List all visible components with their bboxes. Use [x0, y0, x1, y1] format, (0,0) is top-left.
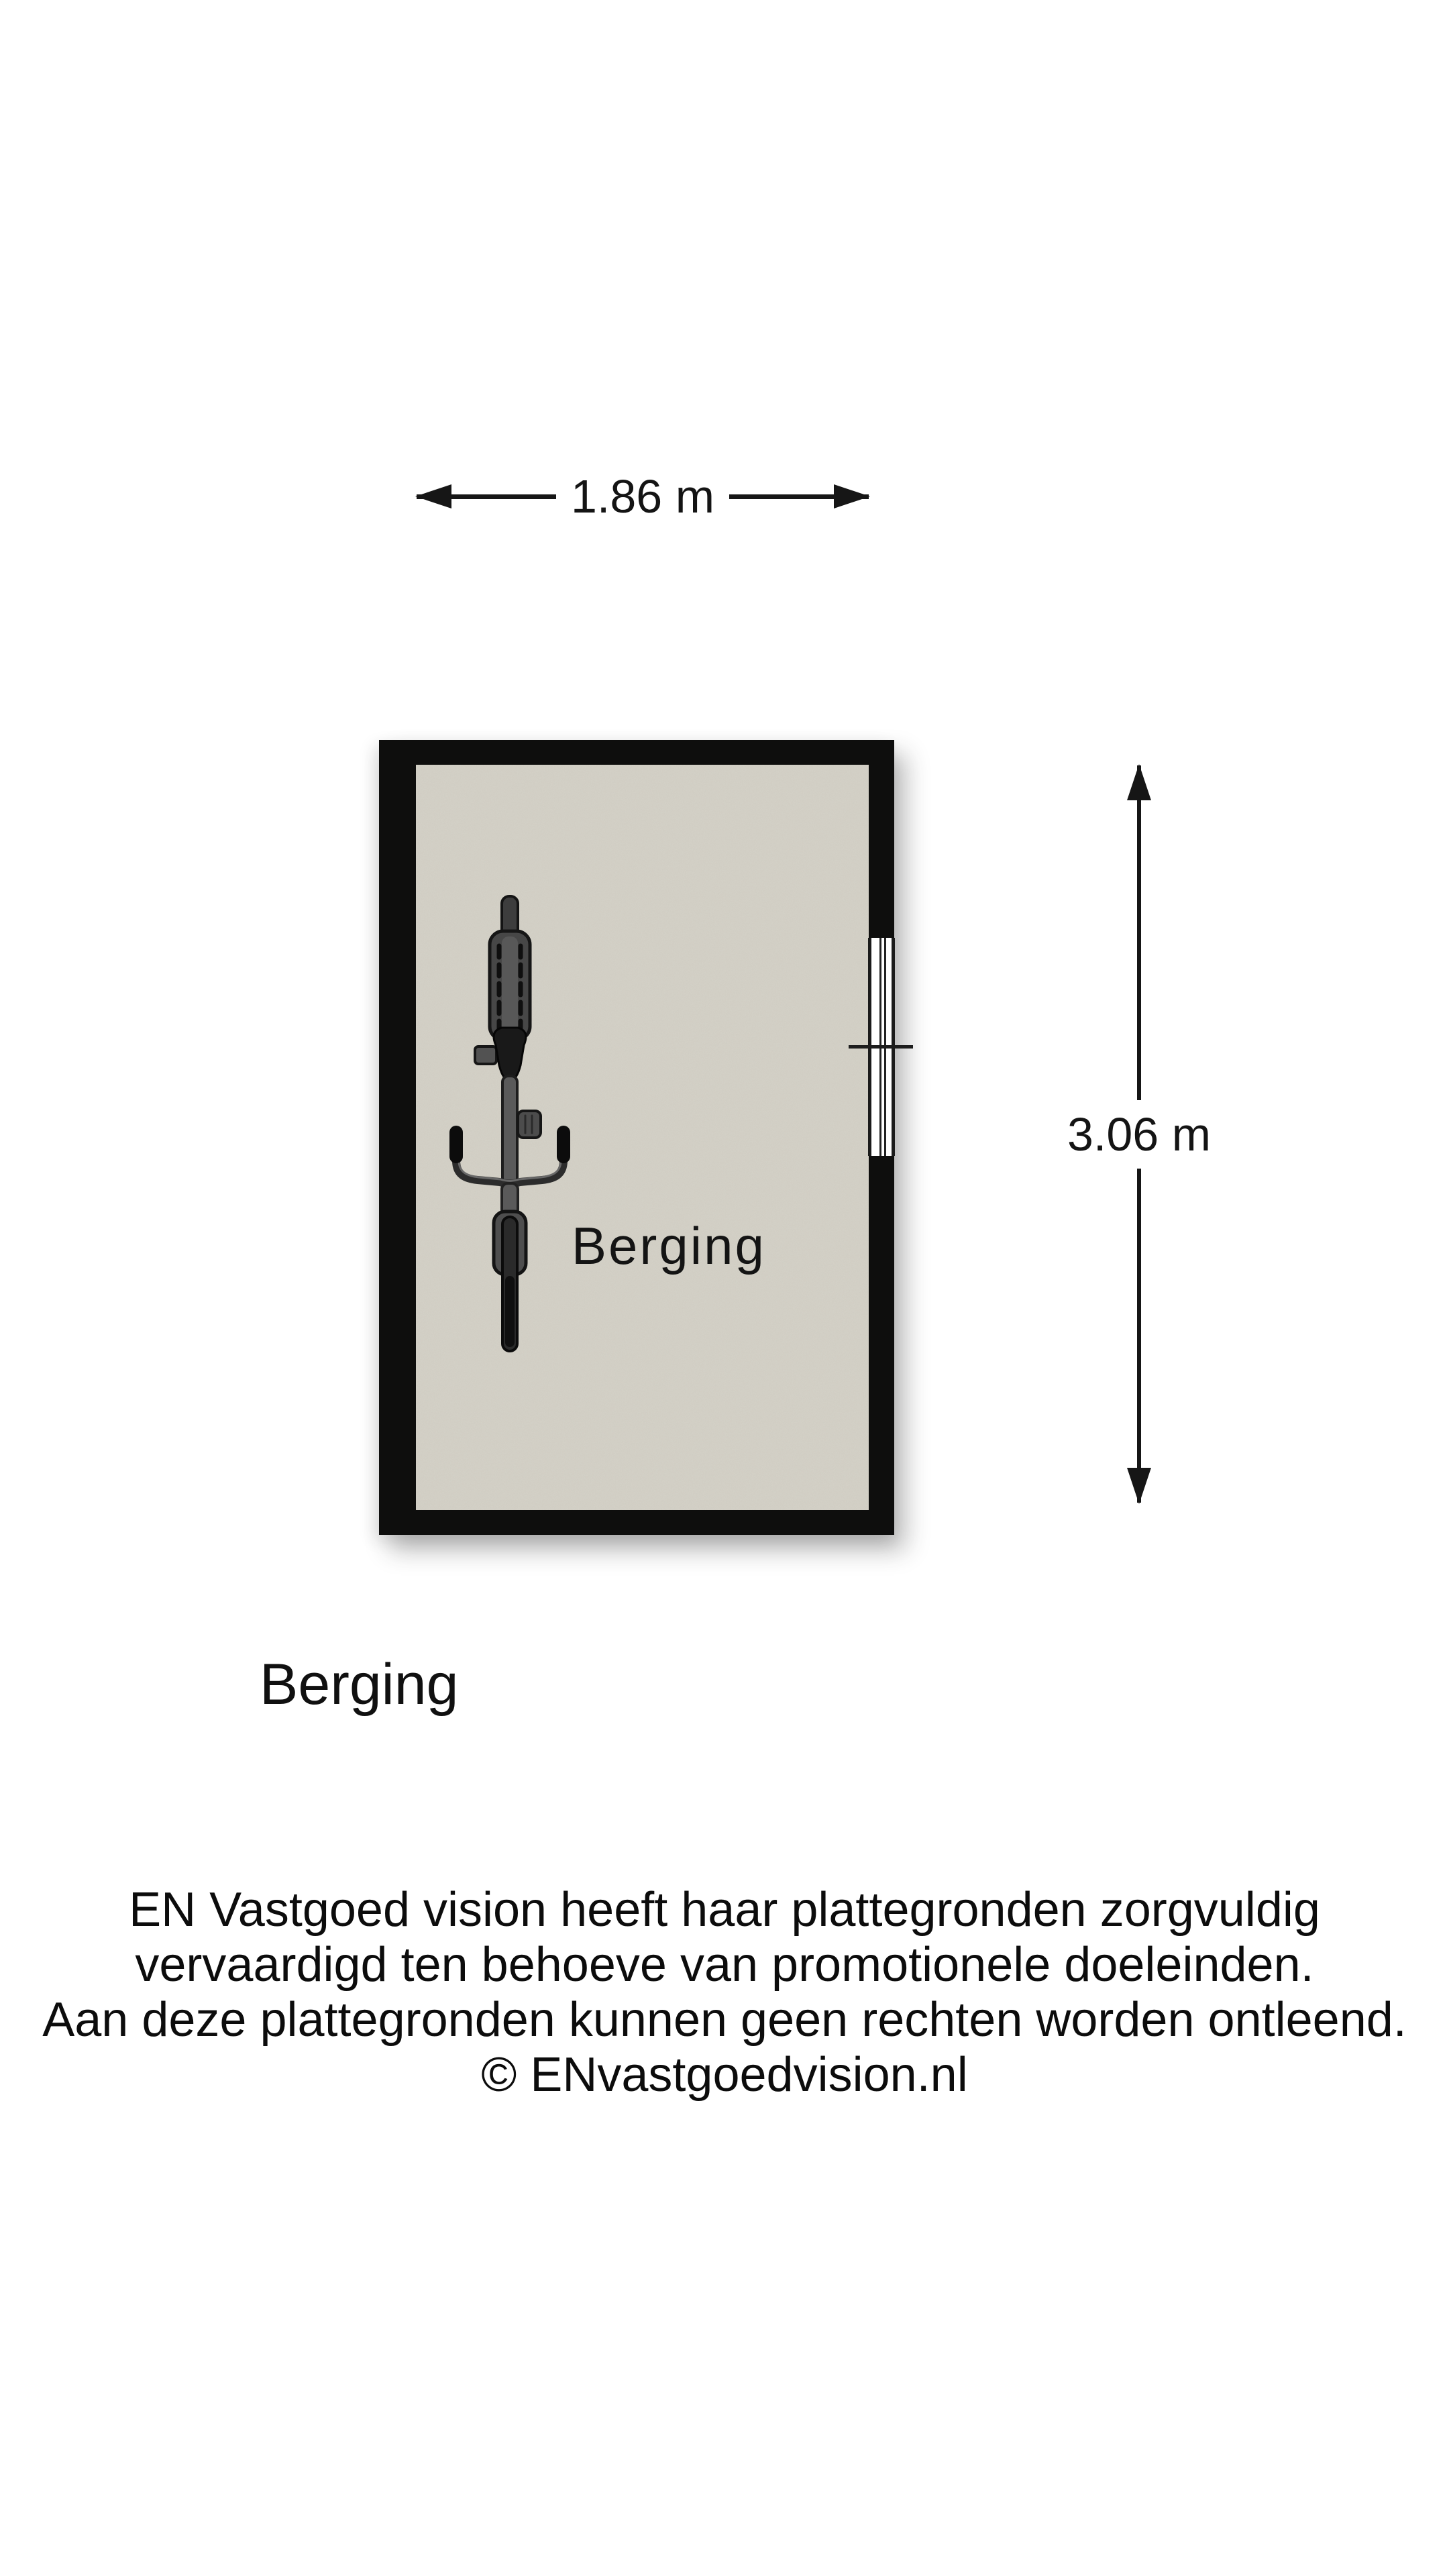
disclaimer-line: Aan deze plattegronden kunnen geen recht…: [0, 1992, 1449, 2047]
room-label: Berging: [572, 1220, 766, 1272]
disclaimer-line: EN Vastgoed vision heeft haar plattegron…: [0, 1882, 1449, 1937]
dimension-arrow-right-icon: [729, 494, 869, 499]
disclaimer: EN Vastgoed vision heeft haar plattegron…: [0, 1882, 1449, 2102]
dimension-width-label: 1.86 m: [556, 473, 729, 520]
dimension-arrow-up-icon: [1137, 765, 1141, 1100]
bicycle-icon: [443, 892, 577, 1355]
disclaimer-line: vervaardigd ten behoeve van promotionele…: [0, 1937, 1449, 1992]
disclaimer-line: © ENvastgoedvision.nl: [0, 2047, 1449, 2102]
dimension-height: 3.06 m: [1065, 765, 1213, 1503]
dimension-width: 1.86 m: [417, 471, 869, 522]
dimension-arrow-left-icon: [417, 494, 556, 499]
floorplan-page: 1.86 m Berging: [0, 0, 1449, 2576]
dimension-arrow-down-icon: [1137, 1169, 1141, 1503]
dimension-height-label: 3.06 m: [1067, 1100, 1211, 1169]
window-measure-tick: [849, 1045, 913, 1049]
floor-title: Berging: [260, 1656, 458, 1713]
